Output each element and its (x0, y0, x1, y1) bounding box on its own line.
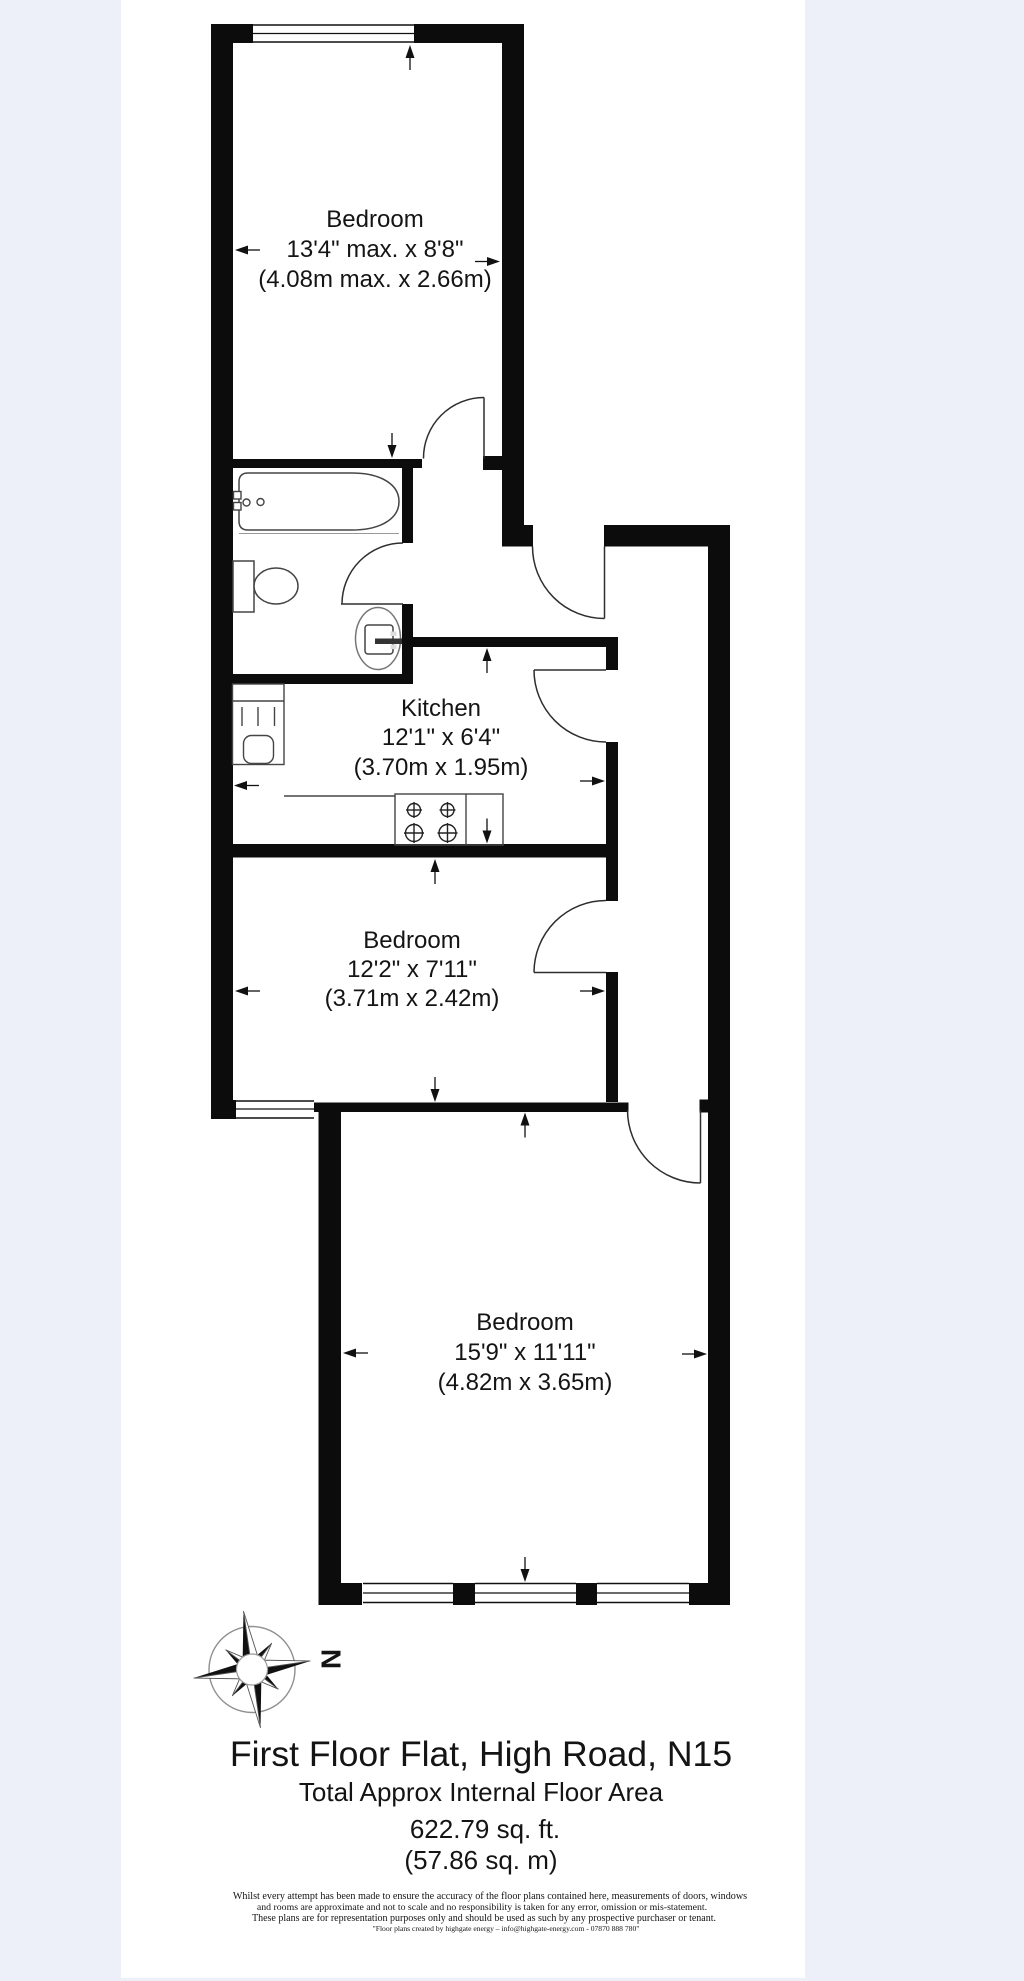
svg-text:N: N (316, 1649, 347, 1669)
svg-text:12'1" x 6'4": 12'1" x 6'4" (382, 724, 500, 751)
svg-text:First Floor Flat, High Road, N: First Floor Flat, High Road, N15 (230, 1734, 732, 1774)
svg-text:Bedroom: Bedroom (363, 927, 460, 954)
svg-text:Bedroom: Bedroom (476, 1309, 573, 1336)
svg-text:15'9" x 11'11": 15'9" x 11'11" (454, 1339, 595, 1366)
svg-text:(4.08m max. x 2.66m): (4.08m max. x 2.66m) (258, 266, 491, 293)
svg-text:(3.71m x 2.42m): (3.71m x 2.42m) (325, 985, 500, 1012)
svg-text:and rooms are approximate and: and rooms are approximate and not to sca… (257, 1902, 707, 1913)
svg-text:Bedroom: Bedroom (326, 206, 423, 233)
svg-text:Kitchen: Kitchen (401, 695, 481, 722)
svg-text:12'2" x 7'11": 12'2" x 7'11" (347, 956, 477, 983)
svg-text:622.79 sq. ft.: 622.79 sq. ft. (410, 1814, 560, 1844)
svg-text:"Floor plans created by highga: "Floor plans created by highgate energy … (373, 1924, 640, 1933)
svg-text:(3.70m x 1.95m): (3.70m x 1.95m) (354, 754, 529, 781)
svg-text:Whilst every attempt has been: Whilst every attempt has been made to en… (233, 1891, 747, 1902)
svg-text:These plans are for representa: These plans are for representation purpo… (252, 1913, 716, 1924)
svg-text:(57.86 sq. m): (57.86 sq. m) (404, 1845, 557, 1875)
svg-text:Total Approx Internal Floor Ar: Total Approx Internal Floor Area (299, 1777, 664, 1807)
svg-text:(4.82m x 3.65m): (4.82m x 3.65m) (438, 1369, 613, 1396)
svg-text:13'4" max. x 8'8": 13'4" max. x 8'8" (287, 236, 464, 263)
